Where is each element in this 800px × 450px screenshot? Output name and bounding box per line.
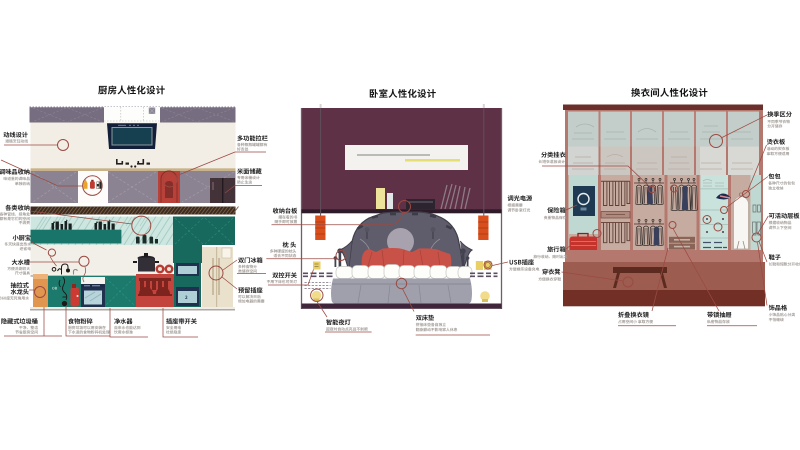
svg-text:2: 2 bbox=[185, 295, 188, 301]
svg-text:占用空间小 拿取方便: 占用空间小 拿取方便 bbox=[618, 319, 653, 325]
svg-text:厨房人性化设计: 厨房人性化设计 bbox=[98, 83, 166, 97]
svg-text:调节上下空间: 调节上下空间 bbox=[769, 225, 792, 231]
svg-text:增加电器的需要: 增加电器的需要 bbox=[238, 298, 265, 304]
svg-text:水龙头: 水龙头 bbox=[10, 287, 29, 296]
svg-text:长靴和短靴分开收纳: 长靴和短靴分开收纳 bbox=[769, 262, 800, 268]
svg-text:调光电源: 调光电源 bbox=[508, 194, 534, 203]
svg-text:隐藏式垃圾桶: 隐藏式垃圾桶 bbox=[1, 317, 38, 326]
svg-text:私密物品存放: 私密物品存放 bbox=[707, 319, 730, 325]
svg-text:食物粉碎: 食物粉碎 bbox=[68, 317, 93, 326]
svg-text:单独收纳: 单独收纳 bbox=[15, 181, 30, 187]
svg-text:分类挂衣: 分类挂衣 bbox=[541, 150, 567, 159]
svg-text:双门冰箱: 双门冰箱 bbox=[238, 256, 263, 265]
svg-text:鞋子: 鞋子 bbox=[769, 253, 781, 262]
svg-text:方便换衣穿鞋: 方便换衣穿鞋 bbox=[538, 277, 561, 283]
svg-text:独立收纳: 独立收纳 bbox=[768, 185, 783, 191]
svg-text:类储存空间: 类储存空间 bbox=[238, 268, 257, 274]
svg-text:不用下床也可关灯: 不用下床也可关灯 bbox=[267, 279, 298, 285]
svg-text:插座带开关: 插座带开关 bbox=[166, 317, 198, 326]
svg-text:杜绝隐患: 杜绝隐患 bbox=[166, 330, 181, 336]
svg-text:方便娱乐设备充电: 方便娱乐设备充电 bbox=[509, 267, 540, 273]
svg-text:旅行收纳、随时出发: 旅行收纳、随时出发 bbox=[533, 254, 567, 260]
svg-text:小厨宝: 小厨宝 bbox=[12, 233, 31, 242]
svg-text:不怕缠绕: 不怕缠绕 bbox=[769, 317, 784, 323]
svg-text:防止生虫: 防止生虫 bbox=[237, 180, 252, 186]
svg-text:折叠换衣镜: 折叠换衣镜 bbox=[618, 310, 650, 319]
svg-text:净水器: 净水器 bbox=[114, 317, 133, 326]
svg-text:翻身颤动不影响家人休息: 翻身颤动不影响家人休息 bbox=[416, 327, 458, 333]
svg-text:节省厨房空间: 节省厨房空间 bbox=[15, 330, 38, 336]
svg-text:360度无死角用水: 360度无死角用水 bbox=[0, 296, 29, 302]
svg-text:预留插座: 预留插座 bbox=[238, 286, 263, 295]
svg-text:USB插座: USB插座 bbox=[509, 258, 534, 267]
svg-text:OB: OB bbox=[52, 287, 58, 292]
svg-text:双床垫: 双床垫 bbox=[416, 313, 435, 322]
svg-text:动线设计: 动线设计 bbox=[3, 130, 28, 139]
svg-text:枕 头: 枕 头 bbox=[283, 240, 297, 249]
svg-text:随手即可放置: 随手即可放置 bbox=[275, 219, 298, 225]
svg-text:调味品收纳: 调味品收纳 bbox=[0, 167, 30, 176]
svg-text:遵循烹饪动线: 遵循烹饪动线 bbox=[5, 139, 28, 145]
svg-text:可活动层板: 可活动层板 bbox=[769, 211, 800, 220]
svg-text:卧室人性化设计: 卧室人性化设计 bbox=[369, 86, 437, 100]
svg-text:调节卧室灯光: 调节卧室灯光 bbox=[508, 208, 531, 214]
svg-text:尺寸锅具: 尺寸锅具 bbox=[15, 271, 30, 277]
svg-text:还省电: 还省电 bbox=[20, 246, 32, 252]
svg-text:拿取方便适用: 拿取方便适用 bbox=[767, 151, 790, 157]
svg-text:起夜时自动点亮且不刺眼: 起夜时自动点亮且不刺眼 bbox=[326, 327, 368, 333]
svg-text:饮用水标准: 饮用水标准 bbox=[114, 330, 133, 336]
svg-text:好去处: 好去处 bbox=[237, 147, 249, 153]
svg-text:适合不同状态: 适合不同状态 bbox=[274, 253, 297, 259]
svg-text:不浪费: 不浪费 bbox=[19, 220, 31, 226]
svg-text:双控开关: 双控开关 bbox=[272, 271, 298, 280]
svg-text:贵重物品保存: 贵重物品保存 bbox=[544, 215, 567, 221]
svg-text:旅行箱: 旅行箱 bbox=[547, 245, 566, 254]
svg-text:保险箱: 保险箱 bbox=[547, 206, 566, 215]
svg-text:烫衣板: 烫衣板 bbox=[767, 137, 786, 146]
svg-text:穿衣凳: 穿衣凳 bbox=[542, 267, 561, 276]
svg-text:米面储藏: 米面储藏 bbox=[237, 167, 263, 176]
svg-text:换衣间人性化设计: 换衣间人性化设计 bbox=[631, 85, 708, 99]
svg-text:包包: 包包 bbox=[768, 172, 780, 181]
svg-text:大水槽: 大水槽 bbox=[11, 258, 30, 267]
svg-text:换季区分: 换季区分 bbox=[767, 110, 793, 119]
svg-text:分开储存: 分开储存 bbox=[767, 124, 782, 130]
svg-text:多功能拉栏: 多功能拉栏 bbox=[237, 134, 268, 143]
svg-text:带锁抽屉: 带锁抽屉 bbox=[707, 310, 732, 319]
svg-text:各类收纳: 各类收纳 bbox=[5, 203, 30, 212]
svg-text:饰品格: 饰品格 bbox=[769, 303, 788, 312]
svg-text:下水道的食物粉碎机处理: 下水道的食物粉碎机处理 bbox=[68, 330, 110, 336]
svg-text:收纳台板: 收纳台板 bbox=[273, 206, 299, 215]
svg-text:智能夜灯: 智能夜灯 bbox=[326, 318, 351, 327]
svg-text:长短衣混放设计: 长短衣混放设计 bbox=[538, 159, 565, 165]
